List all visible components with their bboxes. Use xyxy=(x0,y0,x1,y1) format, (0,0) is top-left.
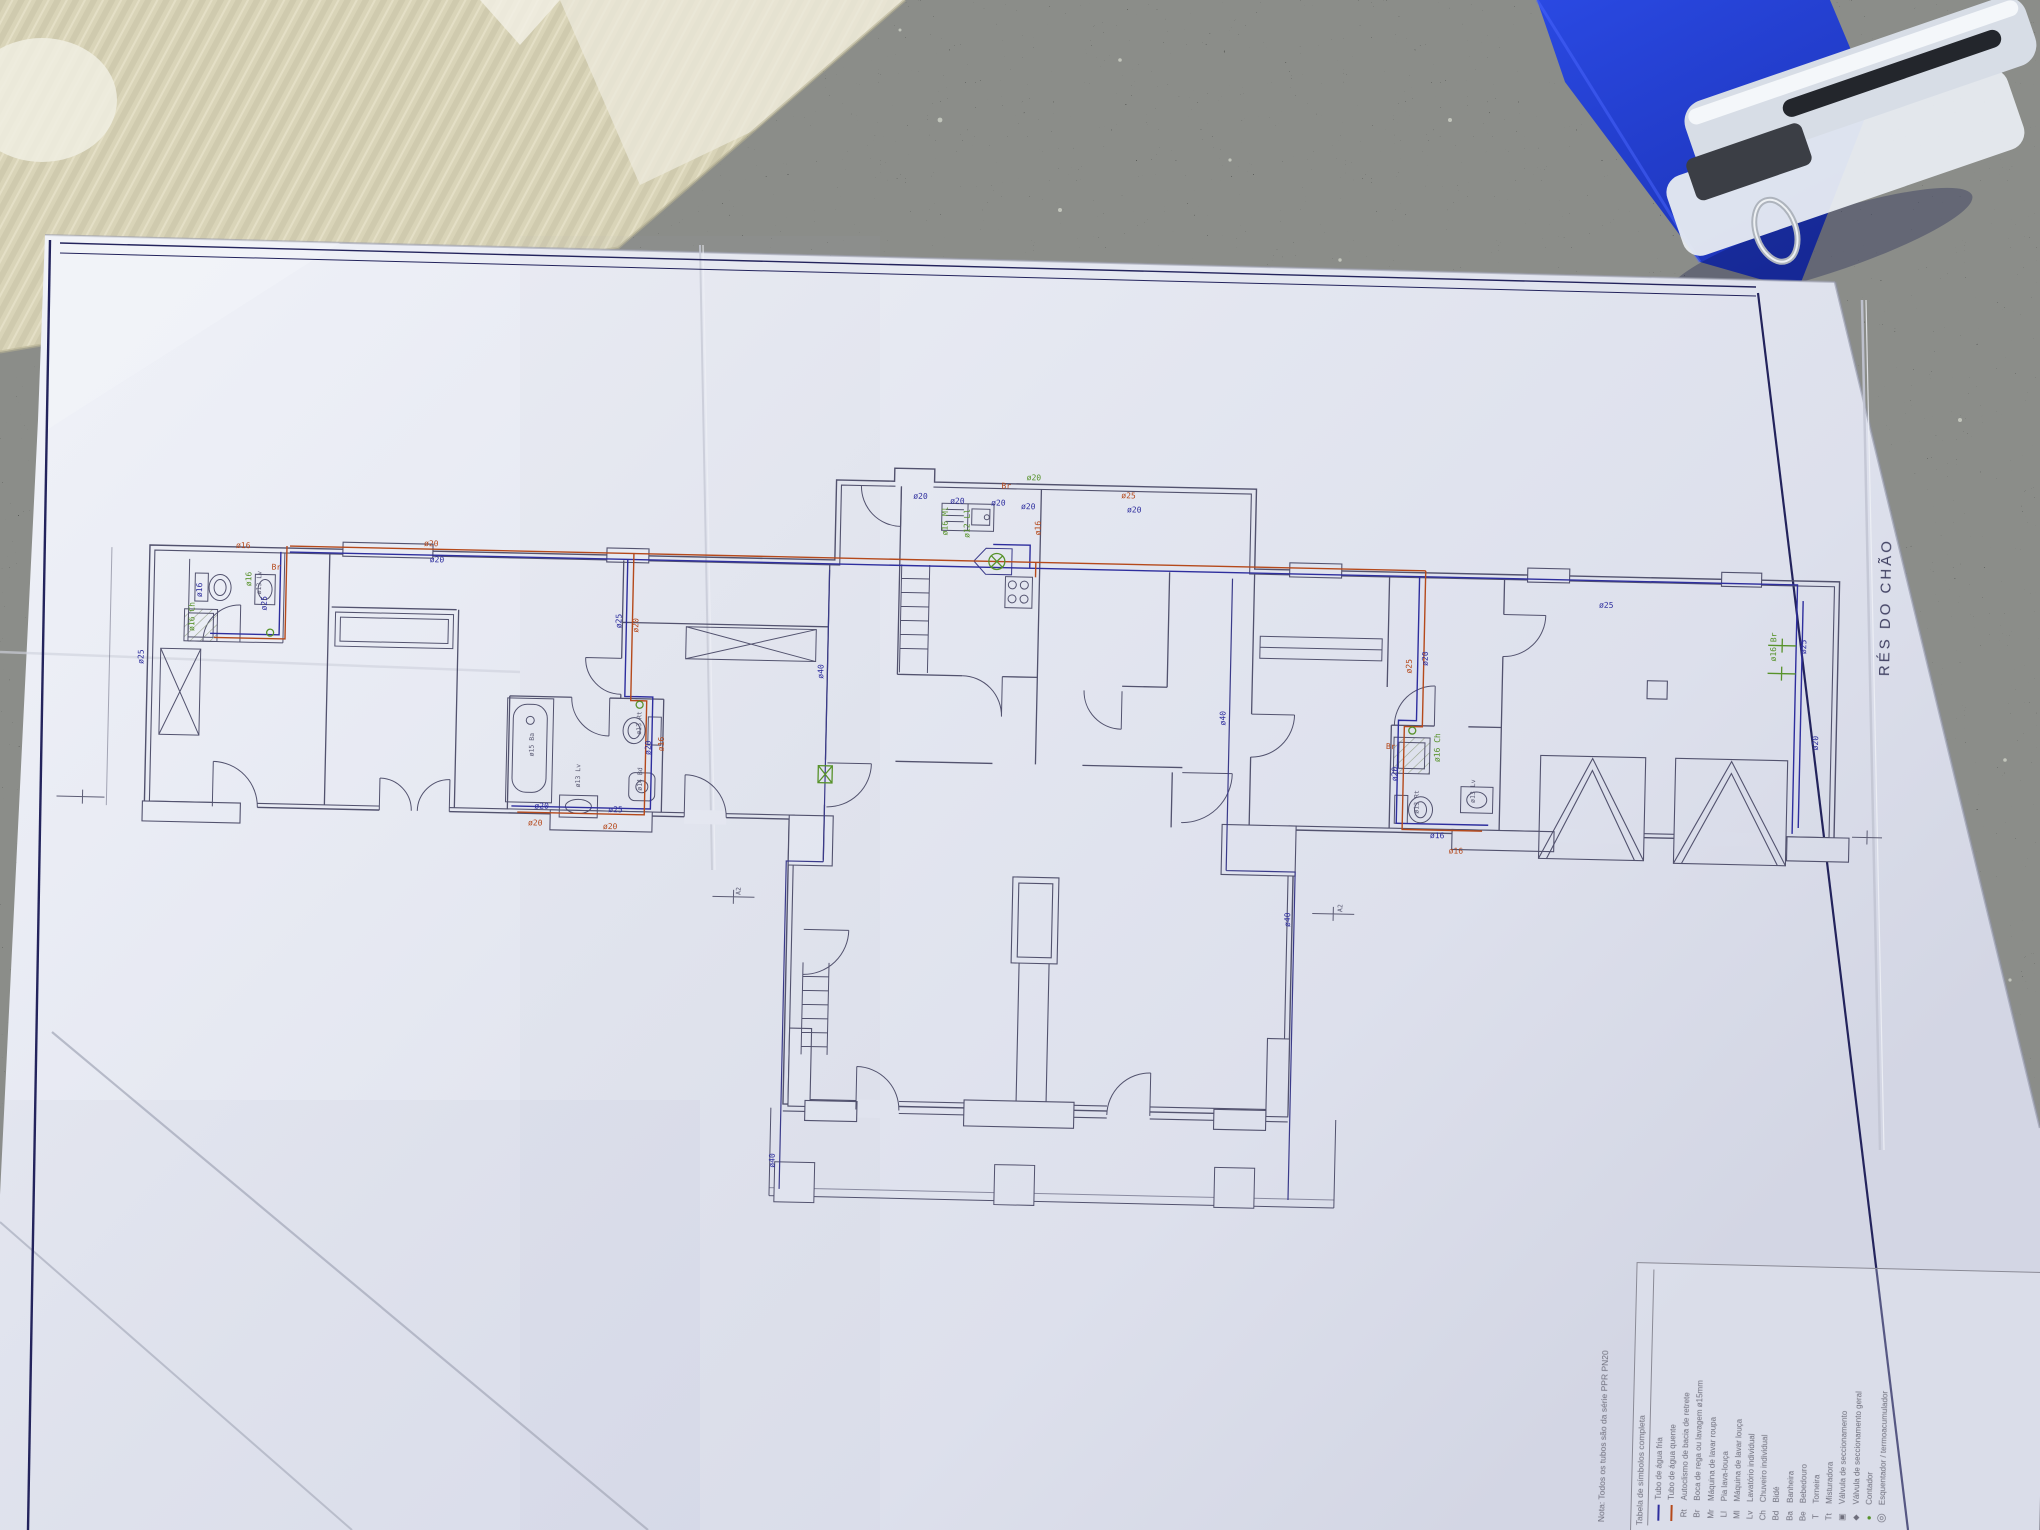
pipe-label: ø25 xyxy=(608,805,623,814)
legend-symbol: Ll xyxy=(1719,1501,1729,1527)
pipe-label: ø20 xyxy=(1421,651,1430,666)
pipe-label: ø13 Lv xyxy=(574,764,583,788)
legend-symbol: Be xyxy=(1798,1503,1808,1529)
legend-label: Lavatório individual xyxy=(1746,1433,1757,1502)
pipe-label: ø20 xyxy=(603,822,618,831)
pipe-label: ø20 xyxy=(1811,736,1820,751)
pipe-label: ø20 xyxy=(528,818,543,827)
pipe-label: ø16 xyxy=(1033,521,1042,536)
legend-symbol xyxy=(1666,1500,1676,1526)
legend-symbol: ◆ xyxy=(1851,1504,1861,1530)
pipe-label: ø13 Rt xyxy=(1412,790,1421,814)
pipe-label: ø20 xyxy=(1127,505,1142,514)
legend-label: Tubo de água quente xyxy=(1667,1424,1678,1500)
pipe-label: ø16 xyxy=(657,736,666,751)
pipe-label: ø20 xyxy=(644,740,653,755)
legend-symbol: Rt xyxy=(1679,1500,1689,1526)
pipe-label: ø25 xyxy=(1404,659,1413,674)
legend-label: Bebedouro xyxy=(1799,1464,1809,1503)
legend-label: Torneira xyxy=(1812,1475,1822,1504)
pipe-label: ø20 xyxy=(631,618,640,633)
legend-symbol: Mr xyxy=(1706,1501,1716,1527)
legend-symbol: T xyxy=(1811,1503,1821,1529)
pipe-label: ø20 xyxy=(950,496,965,505)
pipe-label: ø12 Ll xyxy=(962,509,972,538)
pipe-label: ø20 xyxy=(991,498,1006,507)
pipe-label: A2 xyxy=(735,887,743,895)
pipe-label: ø14 Bd xyxy=(636,767,645,791)
legend-symbol: Ml xyxy=(1732,1501,1742,1527)
pipe-label: ø40 xyxy=(816,664,825,679)
legend-symbol: Ch xyxy=(1758,1502,1768,1528)
pipe-label: ø16 xyxy=(244,571,253,586)
pipe-label: ø40 xyxy=(1283,912,1292,927)
pipe-label: ø20 xyxy=(913,492,928,501)
pipe-label: ø15 Ba xyxy=(527,733,536,757)
legend-label: Máquina de lavar roupa xyxy=(1706,1417,1717,1501)
legend-label: Bidé xyxy=(1772,1486,1782,1502)
pipe-label: ø16 Ml xyxy=(940,506,950,535)
pipe-label: ø40 xyxy=(768,1153,777,1168)
legend-symbol: Br xyxy=(1692,1501,1702,1527)
legend-symbol: Ba xyxy=(1785,1503,1795,1529)
legend-symbol: Lv xyxy=(1745,1502,1755,1528)
legend-symbol: ◎ xyxy=(1875,1505,1888,1530)
pipe-label: ø25 xyxy=(614,614,623,629)
pipe-label: ø25 xyxy=(1121,491,1136,500)
legend-label: Válvula de seccionamento geral xyxy=(1851,1391,1863,1505)
pipe-label: ø20 xyxy=(1027,473,1042,482)
legend-label: Banheira xyxy=(1785,1471,1795,1503)
legend-symbol xyxy=(1653,1500,1663,1526)
pipe-label: ø25 xyxy=(136,649,145,664)
pipe-label: ø20 xyxy=(1390,766,1399,781)
pipe-label: ø13 Lv xyxy=(1469,779,1478,803)
pipe-label: ø16 xyxy=(1449,846,1464,855)
pipe-label: ø16 xyxy=(1430,831,1445,840)
pipe-label: A2 xyxy=(1336,904,1344,912)
legend-label: Autoclismo de bacia de retrete xyxy=(1680,1392,1692,1500)
pipe-label: ø20 xyxy=(424,539,439,548)
floor-title: RÉS DO CHÃO xyxy=(1876,541,1914,677)
legend-label: Tubo de água fria xyxy=(1654,1437,1665,1500)
photo-scene: ø16ø20ø20Brø25ø16ø13 Lvø16 Chø16ø25ø25ø2… xyxy=(0,0,2040,1530)
pipe-label: ø25 xyxy=(1599,601,1614,610)
legend-label: Pia lava-louça xyxy=(1719,1451,1729,1501)
legend-symbol: ▣ xyxy=(1837,1504,1847,1530)
patio-column xyxy=(1214,1167,1255,1208)
legend-symbol: ● xyxy=(1864,1505,1874,1530)
legend-label: Máquina de lavar louça xyxy=(1733,1419,1744,1502)
pipe-label: Br xyxy=(1386,742,1396,751)
pipe-label: ø20 xyxy=(1021,502,1036,511)
pipe-label: ø20 xyxy=(534,801,549,810)
pipe-label: ø20 xyxy=(430,555,445,564)
pipe-label: ø25 xyxy=(1799,639,1808,654)
patio-column xyxy=(994,1165,1035,1206)
pipe-label: ø13 Lv xyxy=(255,571,264,595)
legend-label: Contador xyxy=(1865,1472,1875,1505)
legend-label: Chuveiro individual xyxy=(1759,1435,1770,1503)
legend-label: Esquentador / termoacumulador xyxy=(1878,1391,1890,1505)
pipe-label: ø16 xyxy=(236,541,251,550)
pipe-label: ø40 xyxy=(1218,711,1227,726)
legend-label: Válvula de seccionamento xyxy=(1838,1411,1849,1505)
pipe-label: ø16 Br xyxy=(1769,632,1779,661)
pipe-label: Br xyxy=(1001,482,1011,491)
pipe-label: ø16 Ch xyxy=(187,602,197,631)
pipe-label: ø25 xyxy=(260,596,269,611)
legend-symbol: Bd xyxy=(1772,1502,1782,1528)
pipe-label: ø16 Ch xyxy=(1433,733,1443,762)
legend-label: Misturadora xyxy=(1825,1462,1835,1504)
legend-box: Tabela de símbolos completa Tubo de água… xyxy=(1630,1262,2040,1530)
pipe-label: ø13 Rt xyxy=(635,711,644,735)
legend-label: Boca de rega ou lavagem ø15mm xyxy=(1693,1380,1705,1501)
legend-symbol: Tt xyxy=(1824,1504,1834,1530)
pipe-label: Br xyxy=(271,563,281,572)
pipe-label: ø16 xyxy=(195,582,204,597)
